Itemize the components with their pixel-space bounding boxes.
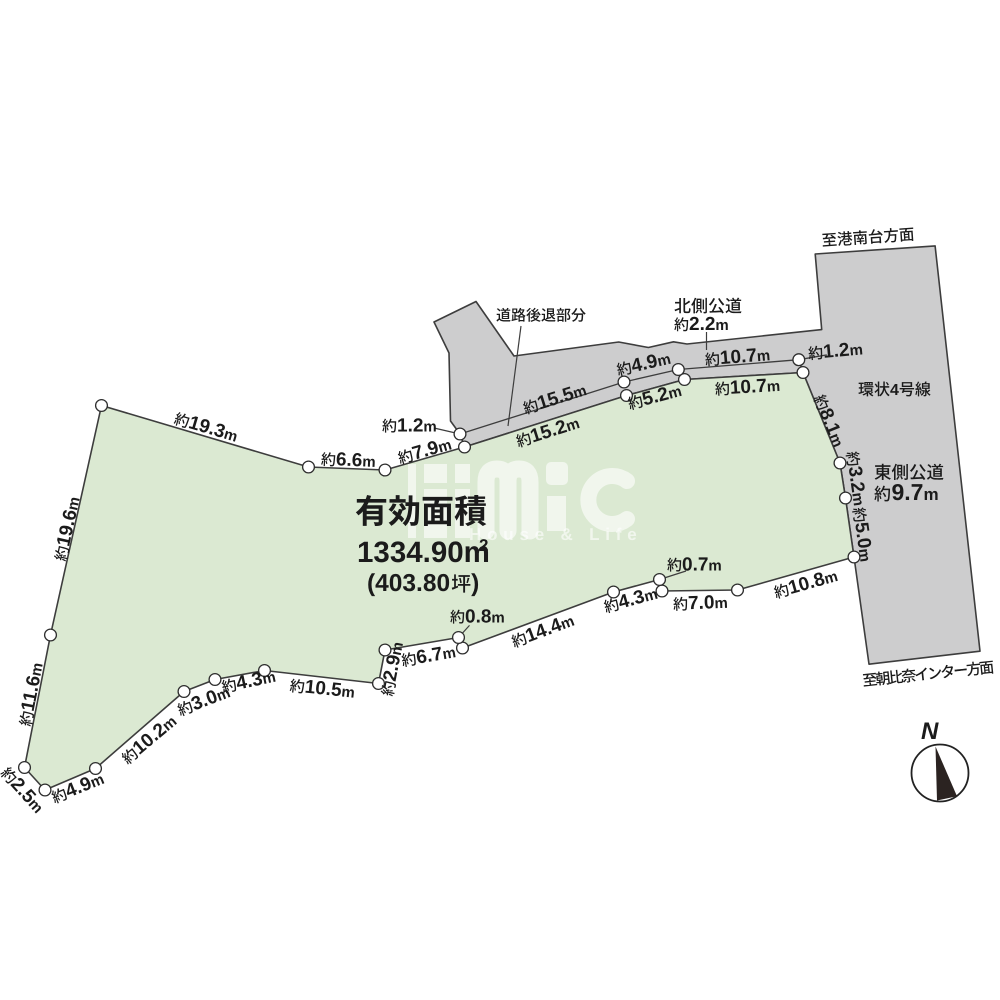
svg-text:10.7m: 10.7m [729,375,780,399]
svg-text:2: 2 [479,536,488,555]
svg-text:0.7m: 0.7m [682,554,722,575]
svg-text:4: 4 [890,382,899,399]
svg-text:(403.80: (403.80 [367,570,450,597]
svg-text:1334.90m: 1334.90m [357,536,490,569]
svg-text:N: N [921,718,939,745]
svg-text:0.8m: 0.8m [465,606,505,627]
svg-text:1.2m: 1.2m [397,415,437,436]
svg-text:): ) [471,570,479,597]
svg-text:2.2m: 2.2m [689,314,729,335]
svg-text:7.0m: 7.0m [688,592,728,614]
svg-text:House & Life: House & Life [469,525,643,544]
